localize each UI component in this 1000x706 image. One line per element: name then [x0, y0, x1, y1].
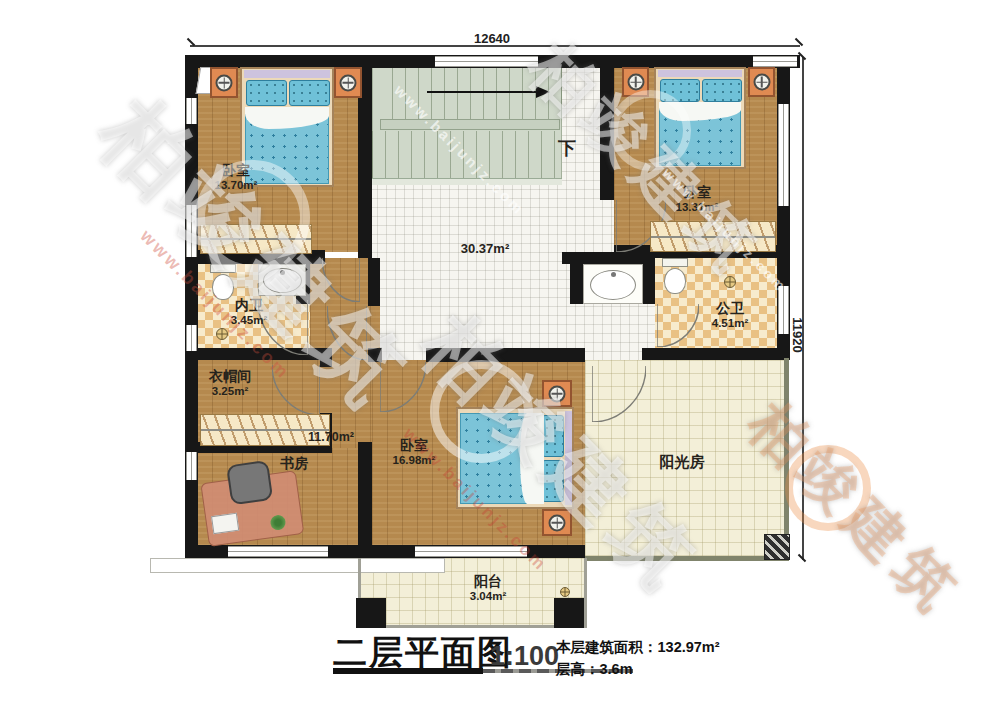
- room-label-inner-bath: 内卫 3.45m²: [231, 298, 267, 327]
- window-public-bath: [778, 286, 789, 334]
- wall-study-right: [358, 442, 372, 545]
- floor-area-text: 本层建筑面积：132.97m²: [556, 638, 720, 657]
- wall-hall-corridor: [368, 258, 380, 306]
- floor-height-text: 层高：3.6m: [556, 660, 633, 679]
- dimension-top-value: 12640: [474, 31, 510, 46]
- sunroom-glass-wall-bottom: [585, 556, 789, 561]
- balcony-column-right: [554, 598, 584, 628]
- room-area: 3.25m²: [209, 384, 251, 397]
- printer-icon: [211, 513, 239, 534]
- room-label-bedroom1: 卧室 13.70m²: [215, 163, 258, 192]
- nightstand: [622, 67, 649, 97]
- window-bedroom1-left2: [186, 205, 197, 257]
- wall-stub: [368, 348, 382, 362]
- wall-public-bath-left: [643, 258, 655, 304]
- door-cloakroom: [272, 365, 320, 415]
- balcony-drain-icon: [560, 587, 570, 597]
- room-area: 3.04m²: [470, 589, 506, 602]
- room-name: 内卫: [231, 298, 267, 314]
- window-bedroom2-right: [778, 104, 789, 206]
- lamp-icon: [216, 74, 233, 91]
- sink-icon: [258, 264, 306, 296]
- title-underline: [333, 668, 483, 674]
- room-name: 公卫: [712, 301, 748, 317]
- faucet-icon: [611, 272, 616, 277]
- door-public-bath: [657, 304, 699, 347]
- room-area: 30.37m²: [461, 242, 509, 257]
- pillow: [542, 460, 564, 502]
- balcony-column-left: [356, 598, 386, 628]
- wall-hall-bottom: [642, 348, 777, 360]
- stair-direction-arrow-icon: [536, 86, 550, 98]
- stair-down-label: 下: [558, 138, 576, 158]
- room-area: 3.45m²: [231, 313, 267, 326]
- office-chair: [226, 460, 273, 505]
- dimension-line-right: [802, 57, 804, 560]
- window-bedroom1-left: [186, 98, 197, 124]
- lamp-icon: [753, 74, 770, 91]
- floor-drain-icon: [216, 328, 228, 340]
- wardrobe-rail: [201, 238, 311, 240]
- room-label-bedroom2: 卧室 13.31m²: [676, 185, 719, 214]
- stair-landing: [372, 178, 562, 185]
- plan-scale: 1:100: [490, 641, 559, 672]
- watermark-logo: [785, 445, 871, 531]
- room-label-sunroom: 阳光房: [660, 454, 705, 471]
- wall-bedroom3-top: [426, 348, 585, 362]
- room-label-bedroom3: 卧室 16.98m²: [393, 438, 436, 467]
- room-label-hall: 30.37m²: [461, 242, 509, 257]
- toilet-bowl: [664, 268, 686, 294]
- lamp-icon: [549, 385, 566, 402]
- bed: [456, 407, 574, 509]
- window-top-right: [753, 56, 797, 67]
- window-inner-bath: [186, 325, 197, 351]
- floor-plan-canvas: 下: [0, 0, 1000, 706]
- stair-lower-flight: [372, 131, 562, 178]
- wardrobe-rail: [651, 236, 775, 238]
- room-name: 阳光房: [660, 454, 705, 471]
- sunroom-glass-wall-right: [784, 358, 789, 560]
- wardrobe: [650, 221, 776, 252]
- toilet-tank: [662, 258, 688, 267]
- balcony-rail-right: [584, 558, 587, 628]
- room-name: 卧室: [215, 163, 258, 179]
- window-sill-ledge: [150, 558, 445, 573]
- room-area: 11.70m²: [308, 430, 354, 444]
- toilet-tank: [210, 264, 236, 273]
- bed: [654, 67, 746, 169]
- bed-headboard: [565, 411, 572, 505]
- room-name: 阳台: [470, 574, 506, 590]
- room-area: 16.98m²: [393, 453, 436, 466]
- nightstand: [542, 509, 572, 536]
- wardrobe: [200, 224, 312, 254]
- faucet-icon: [280, 270, 285, 275]
- toilet-bowl: [212, 274, 234, 300]
- stair-handrail: [380, 119, 560, 130]
- floor-drain-icon: [724, 276, 736, 288]
- bed-headboard: [244, 70, 330, 78]
- room-name: 卧室: [676, 185, 719, 201]
- room-name: 衣帽间: [209, 369, 251, 385]
- sunroom-corner-column: [764, 534, 790, 560]
- pillow: [289, 80, 330, 106]
- room-area: 4.51m²: [712, 316, 748, 329]
- toilet-icon: [208, 264, 238, 302]
- door-bedroom3: [380, 362, 426, 412]
- room-name: 书房: [280, 456, 308, 472]
- nightstand: [748, 67, 775, 97]
- hall-basin-counter: [583, 264, 643, 304]
- bed-headboard: [658, 70, 742, 77]
- room-name: 卧室: [393, 438, 436, 454]
- room-label-public-bath: 公卫 4.51m²: [712, 301, 748, 330]
- lamp-icon: [340, 74, 357, 91]
- room-label-balcony: 阳台 3.04m²: [470, 574, 506, 603]
- door-bedroom1: [322, 258, 360, 302]
- window-bedroom3-balcony: [415, 546, 527, 557]
- lamp-icon: [627, 74, 644, 91]
- door-corridor: [327, 306, 367, 360]
- room-area: 13.70m²: [215, 178, 258, 191]
- lamp-icon: [549, 514, 566, 531]
- window-stairwell: [435, 56, 538, 67]
- bed-sheet: [520, 413, 544, 504]
- nightstand: [542, 380, 572, 407]
- room-area: 13.31m²: [676, 200, 719, 213]
- nightstand: [210, 67, 238, 98]
- nightstand: [334, 67, 362, 98]
- pillow: [542, 415, 564, 457]
- balcony-rail-bottom: [358, 625, 587, 628]
- pillow: [660, 79, 700, 102]
- wall-left: [185, 55, 198, 558]
- dimension-right-value: 11920: [790, 317, 805, 352]
- toilet-icon: [660, 258, 690, 296]
- pillow: [246, 80, 287, 106]
- stair-direction-line: [427, 91, 537, 93]
- door-sunroom: [592, 366, 646, 422]
- wall-basin-alcove-left: [570, 252, 583, 304]
- room-label-study: 书房: [280, 456, 308, 472]
- room-area-study: 11.70m²: [308, 430, 354, 444]
- window-study-left: [186, 452, 197, 480]
- pillow: [702, 79, 742, 102]
- wall-bedroom2-left: [600, 55, 614, 200]
- room-label-cloakroom: 衣帽间 3.25m²: [209, 369, 251, 398]
